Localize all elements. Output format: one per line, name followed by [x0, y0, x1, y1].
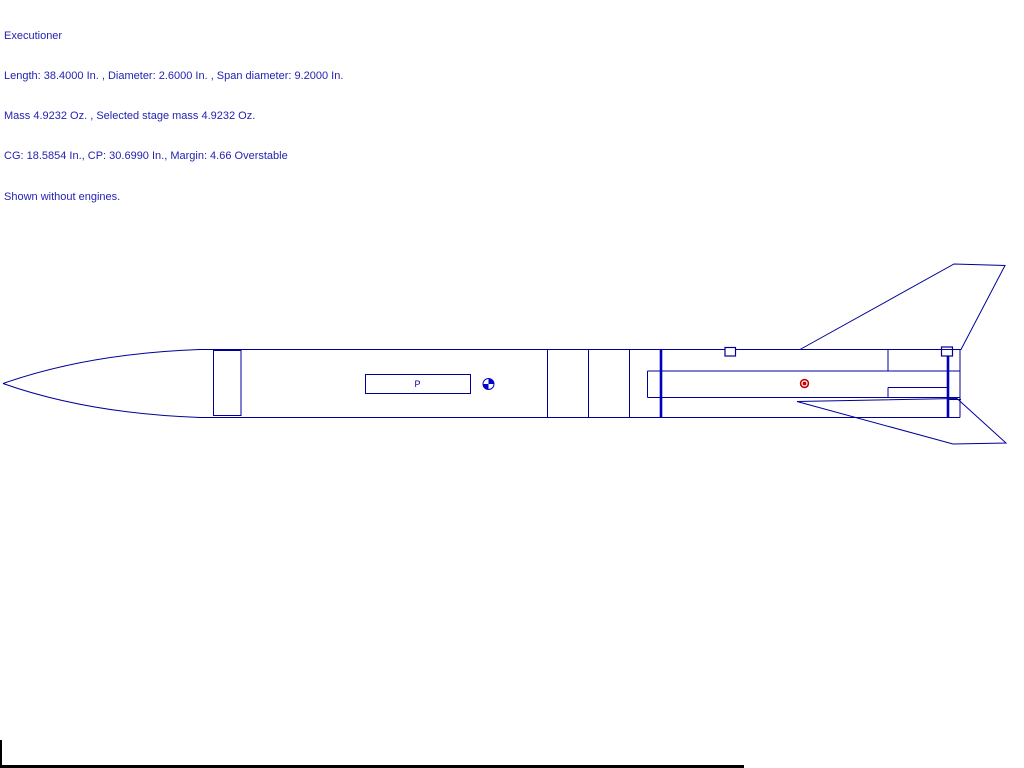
launch-lug-forward[interactable]	[725, 348, 736, 357]
fin-upper[interactable]	[800, 264, 1005, 350]
launch-lug-aft[interactable]	[942, 347, 953, 356]
rocket-diagram: P	[0, 0, 1024, 768]
body-tube[interactable]	[198, 348, 960, 418]
design-canvas[interactable]: Executioner Length: 38.4000 In. , Diamet…	[0, 0, 1024, 768]
fin-lower[interactable]	[797, 399, 1006, 445]
cg-marker	[483, 379, 494, 390]
nose-shoulder	[214, 351, 242, 416]
parachute[interactable]: P	[366, 375, 471, 394]
parachute-label: P	[414, 379, 420, 389]
nose-cone[interactable]	[3, 350, 241, 418]
cp-marker	[801, 380, 809, 388]
window-edge-left	[0, 740, 2, 768]
